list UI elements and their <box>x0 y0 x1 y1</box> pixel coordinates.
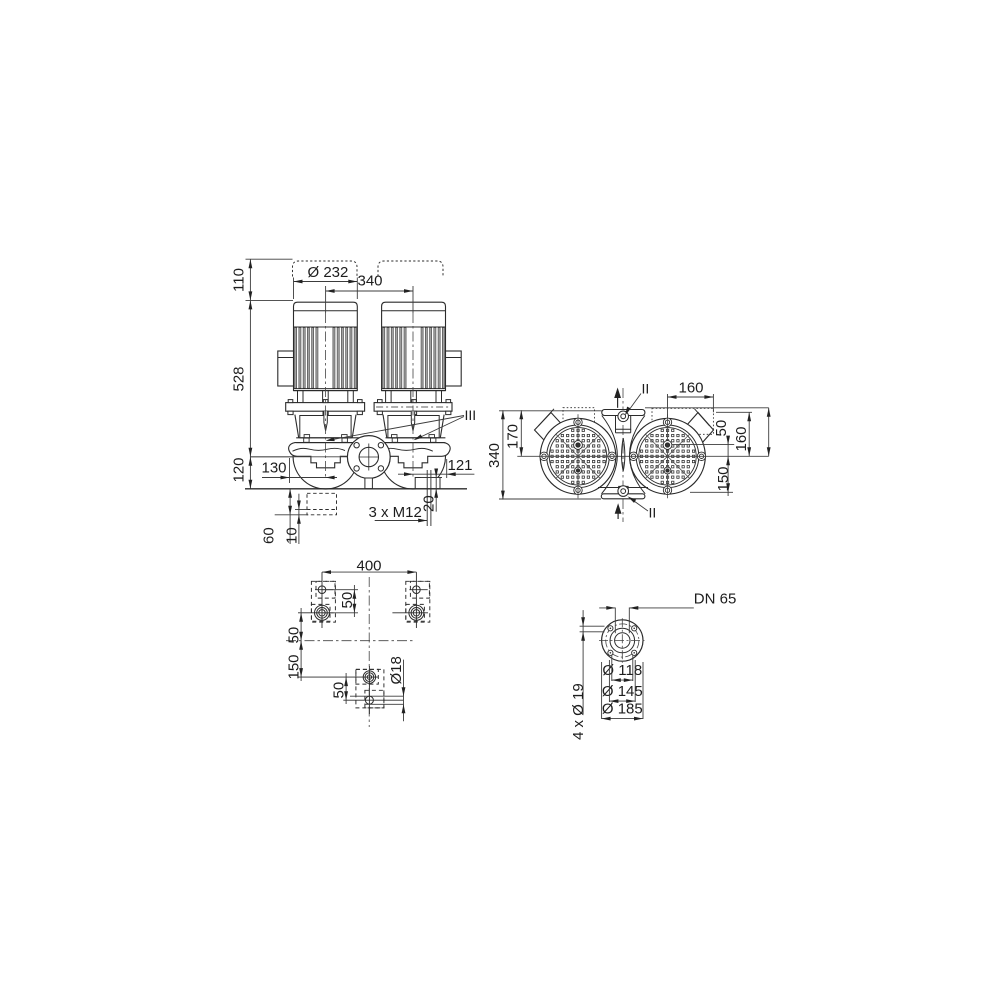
svg-text:110: 110 <box>231 268 248 292</box>
svg-text:150: 150 <box>715 466 732 491</box>
svg-text:Ø 145: Ø 145 <box>602 683 643 700</box>
svg-text:Ø 118: Ø 118 <box>602 662 642 679</box>
svg-text:4 x Ø 19: 4 x Ø 19 <box>570 683 587 740</box>
svg-text:121: 121 <box>448 457 473 474</box>
svg-text:10: 10 <box>283 527 300 544</box>
svg-text:II: II <box>649 505 657 521</box>
svg-text:III: III <box>465 407 477 423</box>
svg-text:340: 340 <box>486 443 503 468</box>
svg-text:DN 65: DN 65 <box>694 591 737 608</box>
svg-text:50: 50 <box>339 592 356 609</box>
svg-text:130: 130 <box>262 459 287 476</box>
svg-text:Ø 232: Ø 232 <box>308 264 349 281</box>
svg-text:150: 150 <box>286 654 303 679</box>
svg-text:3 x M12: 3 x M12 <box>369 504 422 521</box>
svg-text:170: 170 <box>505 424 522 449</box>
svg-text:120: 120 <box>231 457 248 482</box>
svg-text:Ø 185: Ø 185 <box>602 701 643 718</box>
svg-text:60: 60 <box>261 527 278 544</box>
svg-text:50: 50 <box>286 627 303 644</box>
svg-text:340: 340 <box>358 273 383 290</box>
svg-text:160: 160 <box>679 380 704 397</box>
svg-text:50: 50 <box>713 420 730 437</box>
svg-text:II: II <box>642 381 650 397</box>
svg-text:Ø18: Ø18 <box>388 656 405 684</box>
svg-text:20: 20 <box>421 495 438 512</box>
svg-text:50: 50 <box>331 682 348 699</box>
svg-text:528: 528 <box>231 366 248 391</box>
